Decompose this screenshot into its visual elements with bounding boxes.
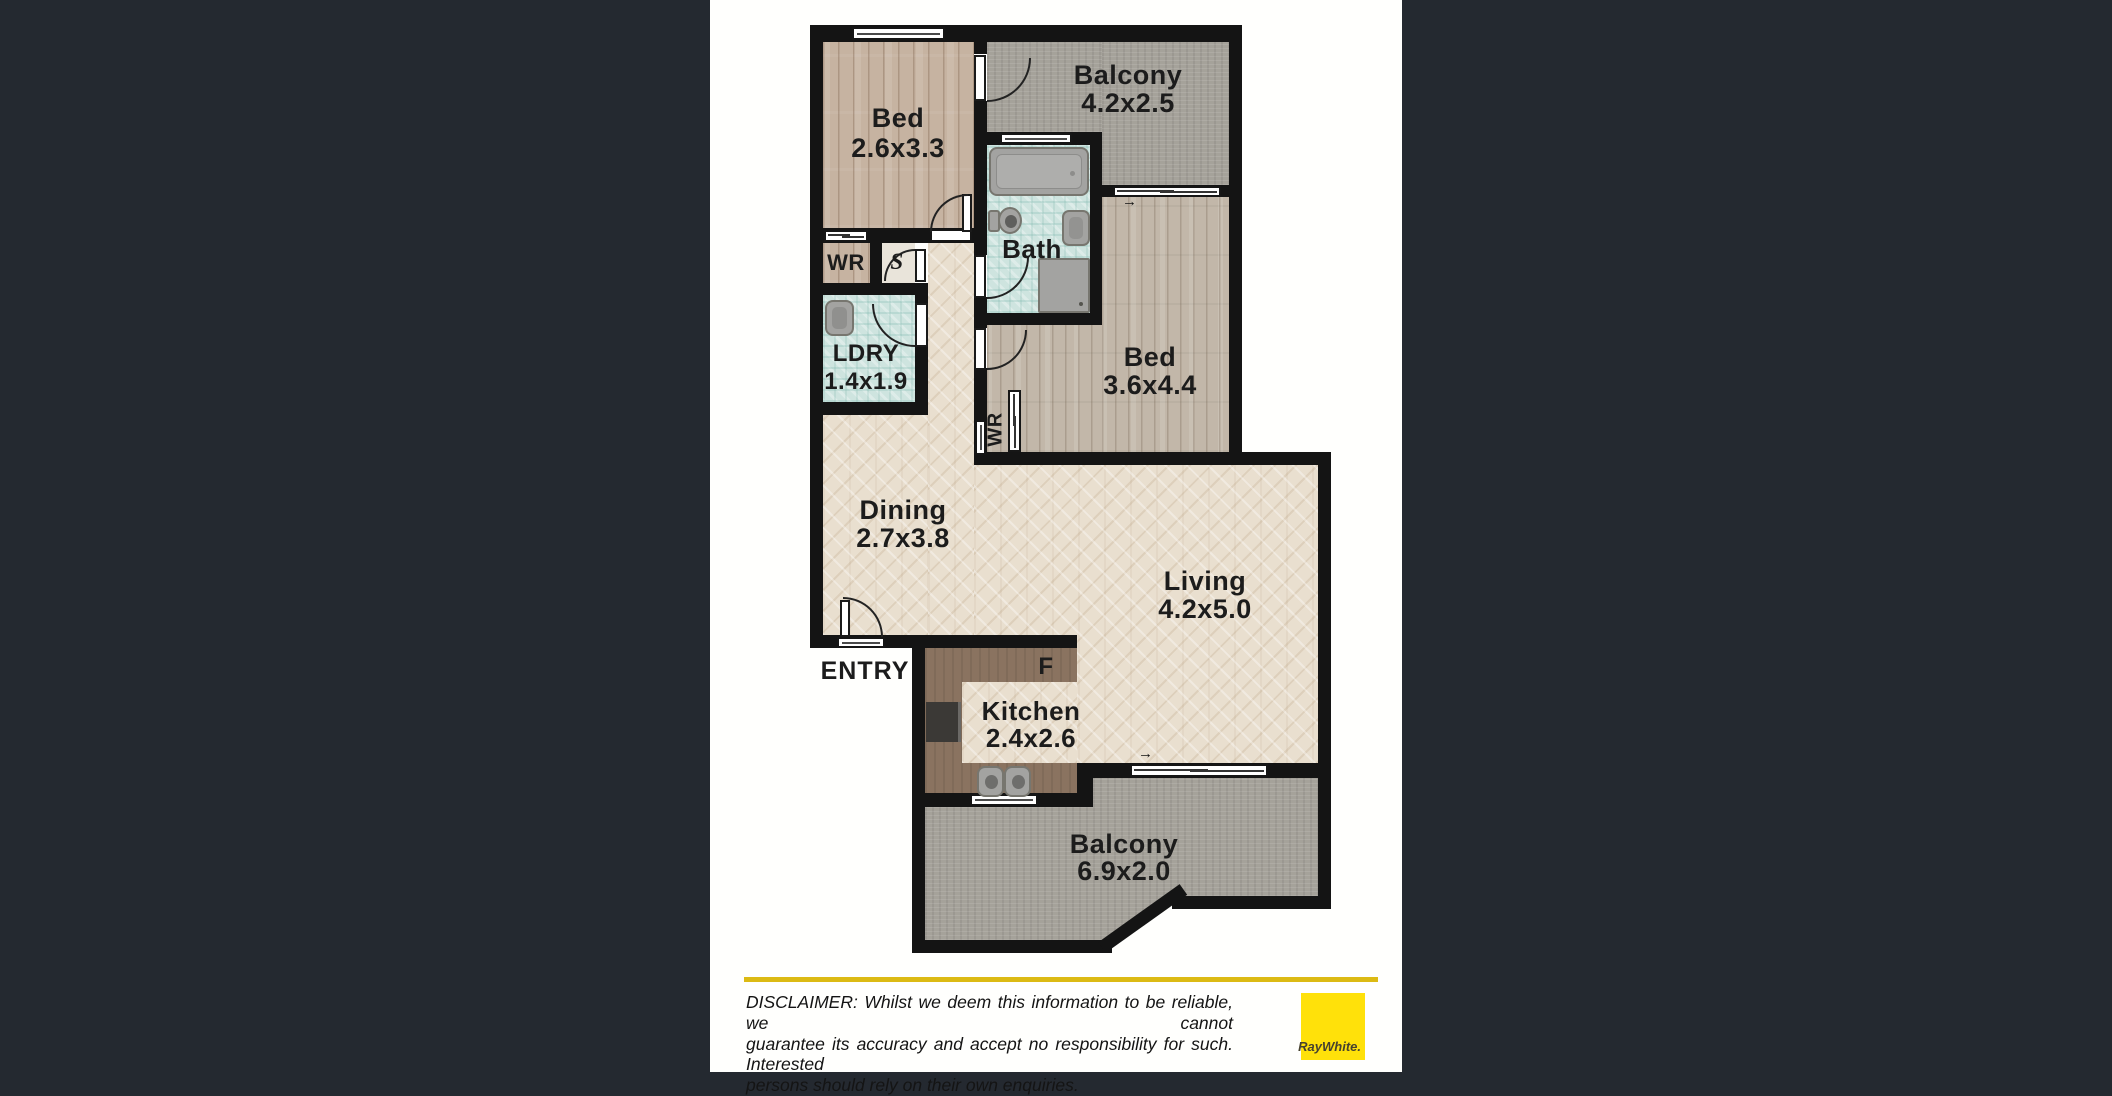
wall-ldry-top (810, 283, 928, 295)
slider-arrow-icon: → (1122, 193, 1137, 210)
kitchen-sink-right (1004, 766, 1031, 797)
wall-balcony2-bottom-left (912, 940, 1112, 953)
laundry-label: LDRY (786, 340, 946, 368)
disclaimer-text: DISCLAIMER: Whilst we deem this informat… (746, 992, 1233, 1096)
bed2-door-leaf (974, 328, 986, 370)
raywhite-logo-text: RayWhite. (1298, 1039, 1361, 1054)
bed2-label: Bed (1070, 342, 1230, 373)
laundry-dims: 1.4x1.9 (786, 368, 946, 396)
bed2-floor-main (1102, 197, 1229, 452)
wall-balcony2-left (912, 793, 925, 953)
balcony-door-leaf (974, 55, 986, 101)
bath-label: Bath (952, 234, 1112, 265)
wall-right-upper (1229, 25, 1242, 465)
kitchen-sink-left (977, 766, 1004, 797)
bed1-window (852, 27, 945, 40)
wall-bath-right (1090, 132, 1102, 325)
wall-bed2-bottom (974, 452, 1331, 465)
wardrobe2-sliding-door (1008, 390, 1021, 452)
wall-bath-bottom (974, 313, 1102, 325)
wall-right-lower (1318, 452, 1331, 909)
entry-label: ENTRY (785, 657, 945, 686)
living-dims: 4.2x5.0 (1125, 594, 1285, 625)
fridge-label: F (1006, 653, 1086, 681)
bed1-label: Bed (818, 103, 978, 134)
disclaimer-line: DISCLAIMER: Whilst we deem this informat… (746, 992, 1233, 1034)
kitchen-dims: 2.4x2.6 (951, 723, 1111, 754)
dining-label: Dining (823, 495, 983, 526)
footer-divider (744, 977, 1378, 982)
shower (1038, 258, 1090, 313)
bed2-dims: 3.6x4.4 (1070, 370, 1230, 401)
disclaimer-line: persons should rely on their own enquiri… (746, 1075, 1233, 1096)
balcony-top-label: Balcony (1048, 60, 1208, 91)
wall-balcony2-bottom-right (1172, 896, 1331, 909)
hall-floor (928, 243, 974, 635)
bathtub (989, 147, 1089, 196)
wardrobe2-label: WR (985, 390, 1008, 470)
dining-dims: 2.7x3.8 (823, 523, 983, 554)
storage-label: S (857, 249, 937, 275)
washing-machine (825, 300, 854, 336)
bed1-dims: 2.6x3.3 (818, 133, 978, 164)
entry-door-sill (837, 637, 885, 648)
toilet-bowl (998, 207, 1022, 234)
raywhite-logo: RayWhite. (1301, 993, 1365, 1060)
living-sliding-door (1130, 764, 1268, 777)
wardrobe1-sliding-door (824, 230, 868, 242)
balcony-bottom-dims: 6.9x2.0 (1044, 856, 1204, 887)
wall-ldry-bottom (810, 402, 928, 415)
living-label: Living (1125, 566, 1285, 597)
floorplan-page: { "plan": { "rooms": { "bed1": {"name": … (0, 0, 2112, 1072)
slider-arrow-icon: → (1138, 745, 1153, 762)
disclaimer-line: guarantee its accuracy and accept no res… (746, 1034, 1233, 1076)
bath-window (1000, 133, 1072, 144)
balcony-top-dims: 4.2x2.5 (1048, 88, 1208, 119)
